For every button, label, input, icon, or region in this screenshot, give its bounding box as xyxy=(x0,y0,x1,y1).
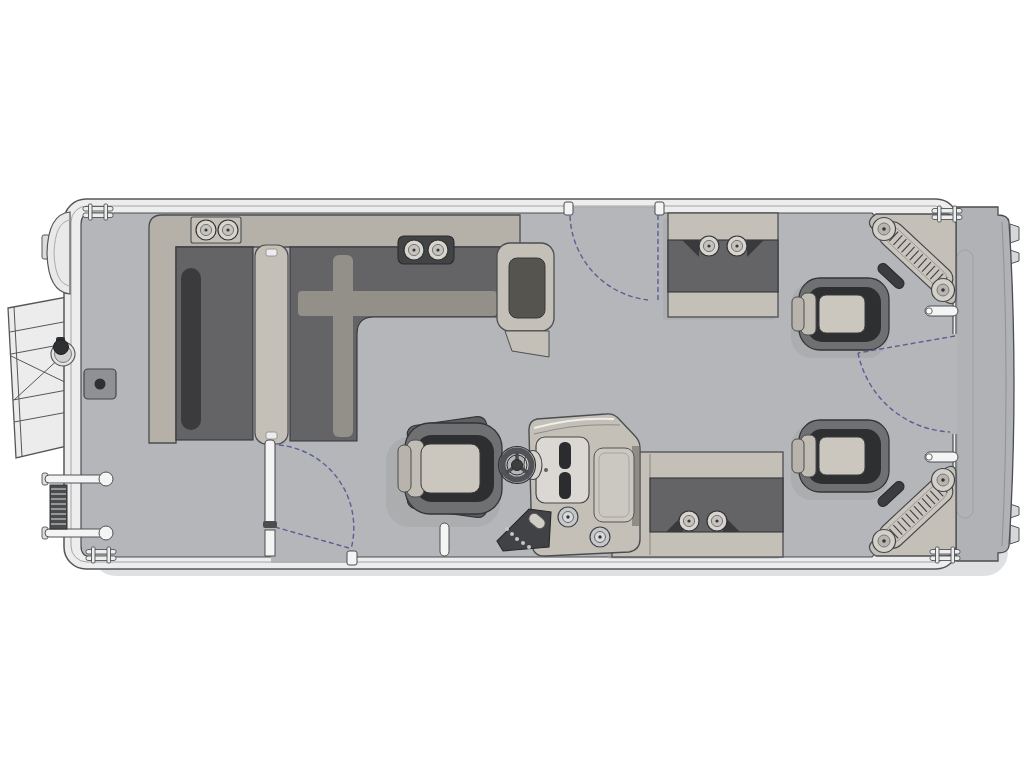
bow-gate-open xyxy=(263,440,277,556)
fence-post xyxy=(440,523,449,556)
table-base xyxy=(84,369,116,399)
recliner-seat-port xyxy=(791,278,889,358)
bow-nose-cone xyxy=(42,212,70,294)
pontoon-floorplan xyxy=(0,0,1024,768)
port-aft-bench xyxy=(663,213,778,320)
lounge-center-armrest xyxy=(255,245,288,444)
recliner-seat-starboard xyxy=(791,420,889,500)
stern-platform xyxy=(956,207,1019,561)
steering-wheel xyxy=(499,447,536,484)
